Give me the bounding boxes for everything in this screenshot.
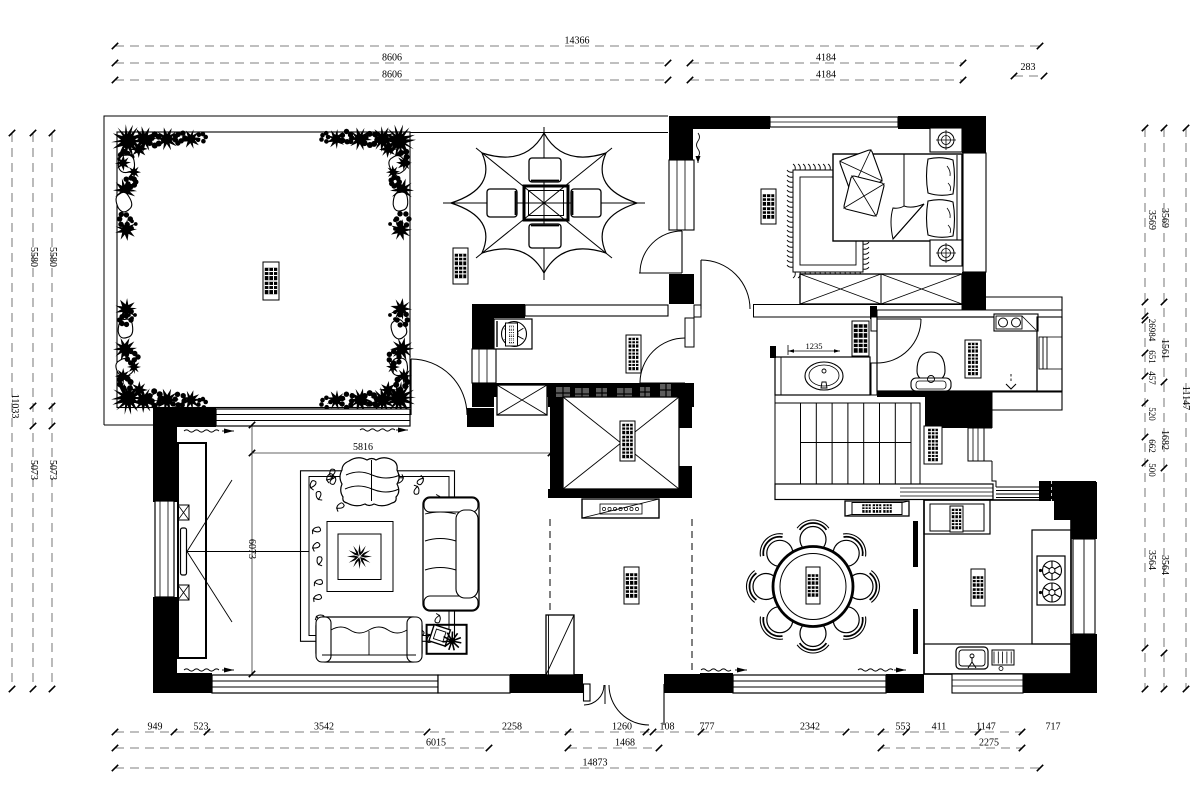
svg-text:8606: 8606 [382,53,402,64]
svg-text:457: 457 [1147,371,1157,385]
svg-text:553: 553 [896,722,911,733]
svg-text:523: 523 [194,722,209,733]
svg-text:4184: 4184 [816,53,836,64]
svg-text:1682: 1682 [1159,430,1170,450]
svg-text:14873: 14873 [583,758,608,769]
svg-text:717: 717 [1046,722,1061,733]
svg-text:11147: 11147 [1180,386,1191,410]
svg-text:777: 777 [700,722,715,733]
svg-text:662: 662 [1147,439,1157,453]
svg-text:2342: 2342 [800,722,820,733]
svg-text:411: 411 [932,722,947,733]
svg-text:11033: 11033 [9,394,20,419]
svg-text:3569: 3569 [1146,210,1157,230]
svg-text:2258: 2258 [502,722,522,733]
svg-text:5580: 5580 [28,247,39,267]
svg-text:5580: 5580 [47,247,58,267]
svg-text:1235: 1235 [806,341,823,351]
svg-text:5073: 5073 [28,460,39,480]
svg-text:3542: 3542 [314,722,334,733]
svg-text:14366: 14366 [565,36,590,47]
svg-text:4184: 4184 [816,70,836,81]
svg-text:108: 108 [660,722,675,733]
svg-text:949: 949 [148,722,163,733]
svg-text:26984: 26984 [1147,319,1157,342]
svg-text:1561: 1561 [1159,339,1170,359]
svg-text:3569: 3569 [1159,208,1170,228]
svg-text:500: 500 [1147,463,1157,477]
svg-text:6073: 6073 [246,539,257,559]
svg-text:5816: 5816 [353,442,373,453]
svg-text:1147: 1147 [976,722,996,733]
svg-text:5073: 5073 [47,460,58,480]
svg-text:1468: 1468 [615,738,635,749]
svg-text:283: 283 [1021,62,1036,73]
svg-text:2275: 2275 [979,738,999,749]
svg-text:1260: 1260 [612,722,632,733]
svg-text:8606: 8606 [382,70,402,81]
svg-text:6015: 6015 [426,738,446,749]
svg-text:3564: 3564 [1159,555,1170,575]
svg-text:520: 520 [1147,407,1157,421]
svg-text:3564: 3564 [1146,550,1157,570]
svg-text:651: 651 [1147,350,1157,364]
